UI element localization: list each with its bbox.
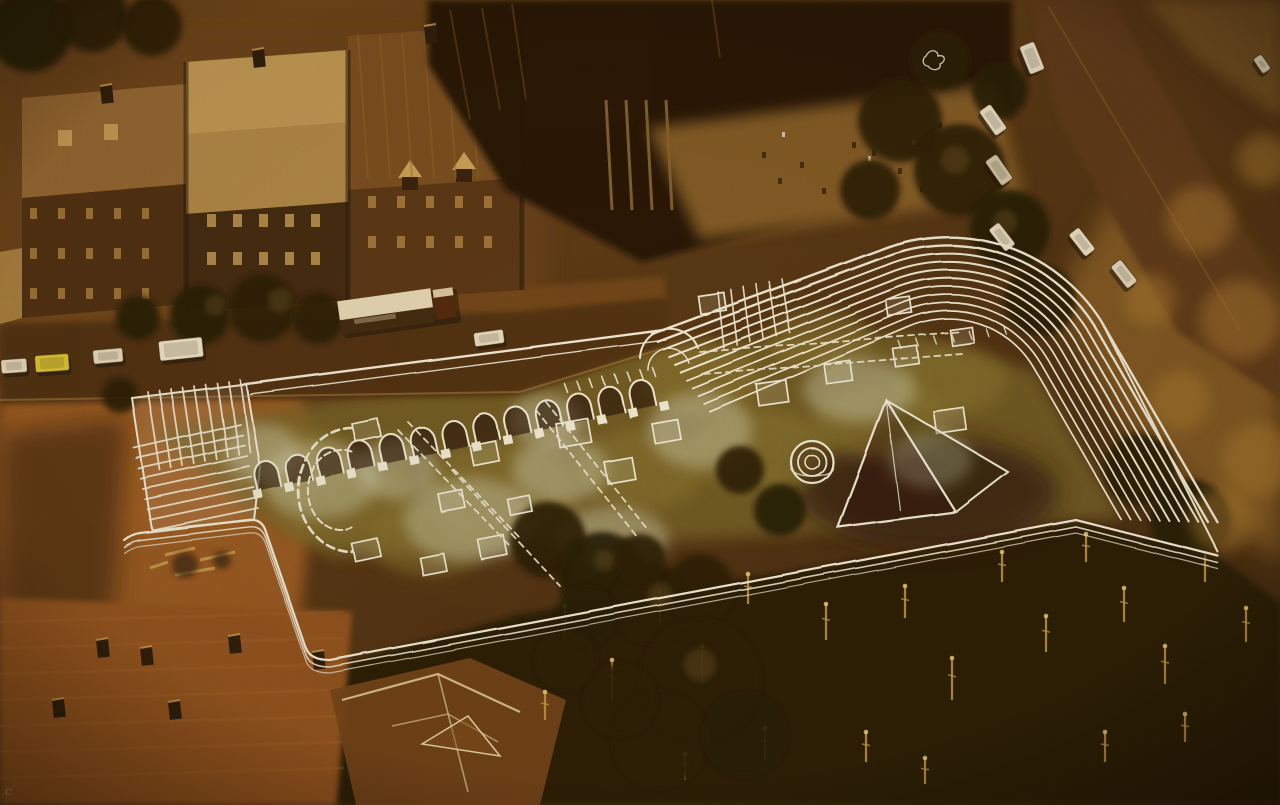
- photo-canvas: c: [0, 0, 1280, 805]
- aerial-photograph: c: [0, 0, 1280, 805]
- vignette: [0, 0, 1280, 805]
